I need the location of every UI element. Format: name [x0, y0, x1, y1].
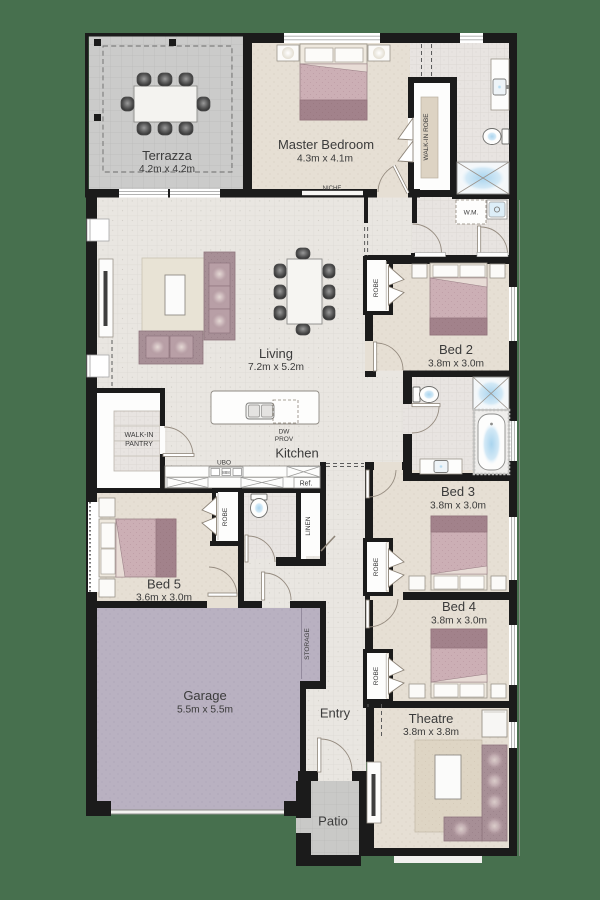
svg-text:DW: DW [279, 429, 291, 436]
svg-text:W.M.: W.M. [464, 210, 479, 217]
svg-text:5.5m x 5.5m: 5.5m x 5.5m [177, 705, 233, 716]
svg-text:STORAGE: STORAGE [304, 628, 311, 660]
svg-text:4.3m x 4.1m: 4.3m x 4.1m [297, 154, 353, 165]
svg-text:ROBE: ROBE [373, 666, 380, 685]
svg-text:Garage: Garage [183, 688, 226, 703]
svg-text:NICHE: NICHE [323, 186, 342, 192]
svg-text:Kitchen: Kitchen [275, 446, 318, 461]
svg-text:Theatre: Theatre [409, 711, 454, 726]
svg-text:PANTRY: PANTRY [125, 441, 153, 448]
svg-text:Living: Living [259, 346, 293, 361]
svg-text:Terrazza: Terrazza [142, 148, 193, 163]
svg-text:ROBE: ROBE [373, 557, 380, 576]
svg-text:7.2m x 5.2m: 7.2m x 5.2m [248, 362, 304, 373]
svg-text:Entry: Entry [320, 706, 351, 721]
svg-text:UBO: UBO [217, 460, 231, 467]
svg-text:WALK-IN: WALK-IN [125, 432, 154, 439]
svg-text:Bed 3: Bed 3 [441, 484, 475, 499]
svg-text:Bed 4: Bed 4 [442, 599, 476, 614]
svg-text:ROBE: ROBE [373, 278, 380, 297]
svg-text:Bed 5: Bed 5 [147, 577, 181, 592]
svg-text:3.8m x 3.0m: 3.8m x 3.0m [430, 501, 486, 512]
svg-text:Ref.: Ref. [300, 481, 313, 488]
svg-text:4.2m x 4.2m: 4.2m x 4.2m [139, 164, 195, 175]
svg-text:3.8m x 3.8m: 3.8m x 3.8m [403, 727, 459, 738]
svg-text:Patio: Patio [318, 814, 348, 829]
svg-text:Bed 2: Bed 2 [439, 342, 473, 357]
svg-text:Master Bedroom: Master Bedroom [278, 137, 374, 152]
svg-text:3.6m x 3.0m: 3.6m x 3.0m [136, 593, 192, 604]
svg-text:3.8m x 3.0m: 3.8m x 3.0m [431, 616, 487, 627]
svg-text:3.8m x 3.0m: 3.8m x 3.0m [428, 359, 484, 370]
svg-text:888: 888 [222, 470, 230, 475]
svg-text:PROV: PROV [275, 436, 294, 443]
svg-text:ROBE: ROBE [222, 507, 229, 526]
svg-text:WALK-IN ROBE: WALK-IN ROBE [423, 113, 430, 161]
svg-text:LINEN: LINEN [305, 516, 312, 535]
